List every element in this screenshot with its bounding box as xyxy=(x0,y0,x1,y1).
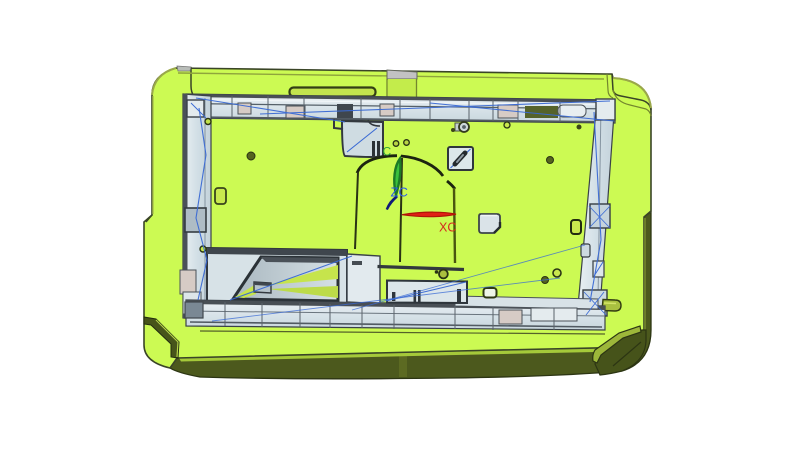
svg-text:XC: XC xyxy=(439,221,456,235)
svg-text:ZC: ZC xyxy=(391,185,408,200)
svg-text:C: C xyxy=(383,145,392,159)
